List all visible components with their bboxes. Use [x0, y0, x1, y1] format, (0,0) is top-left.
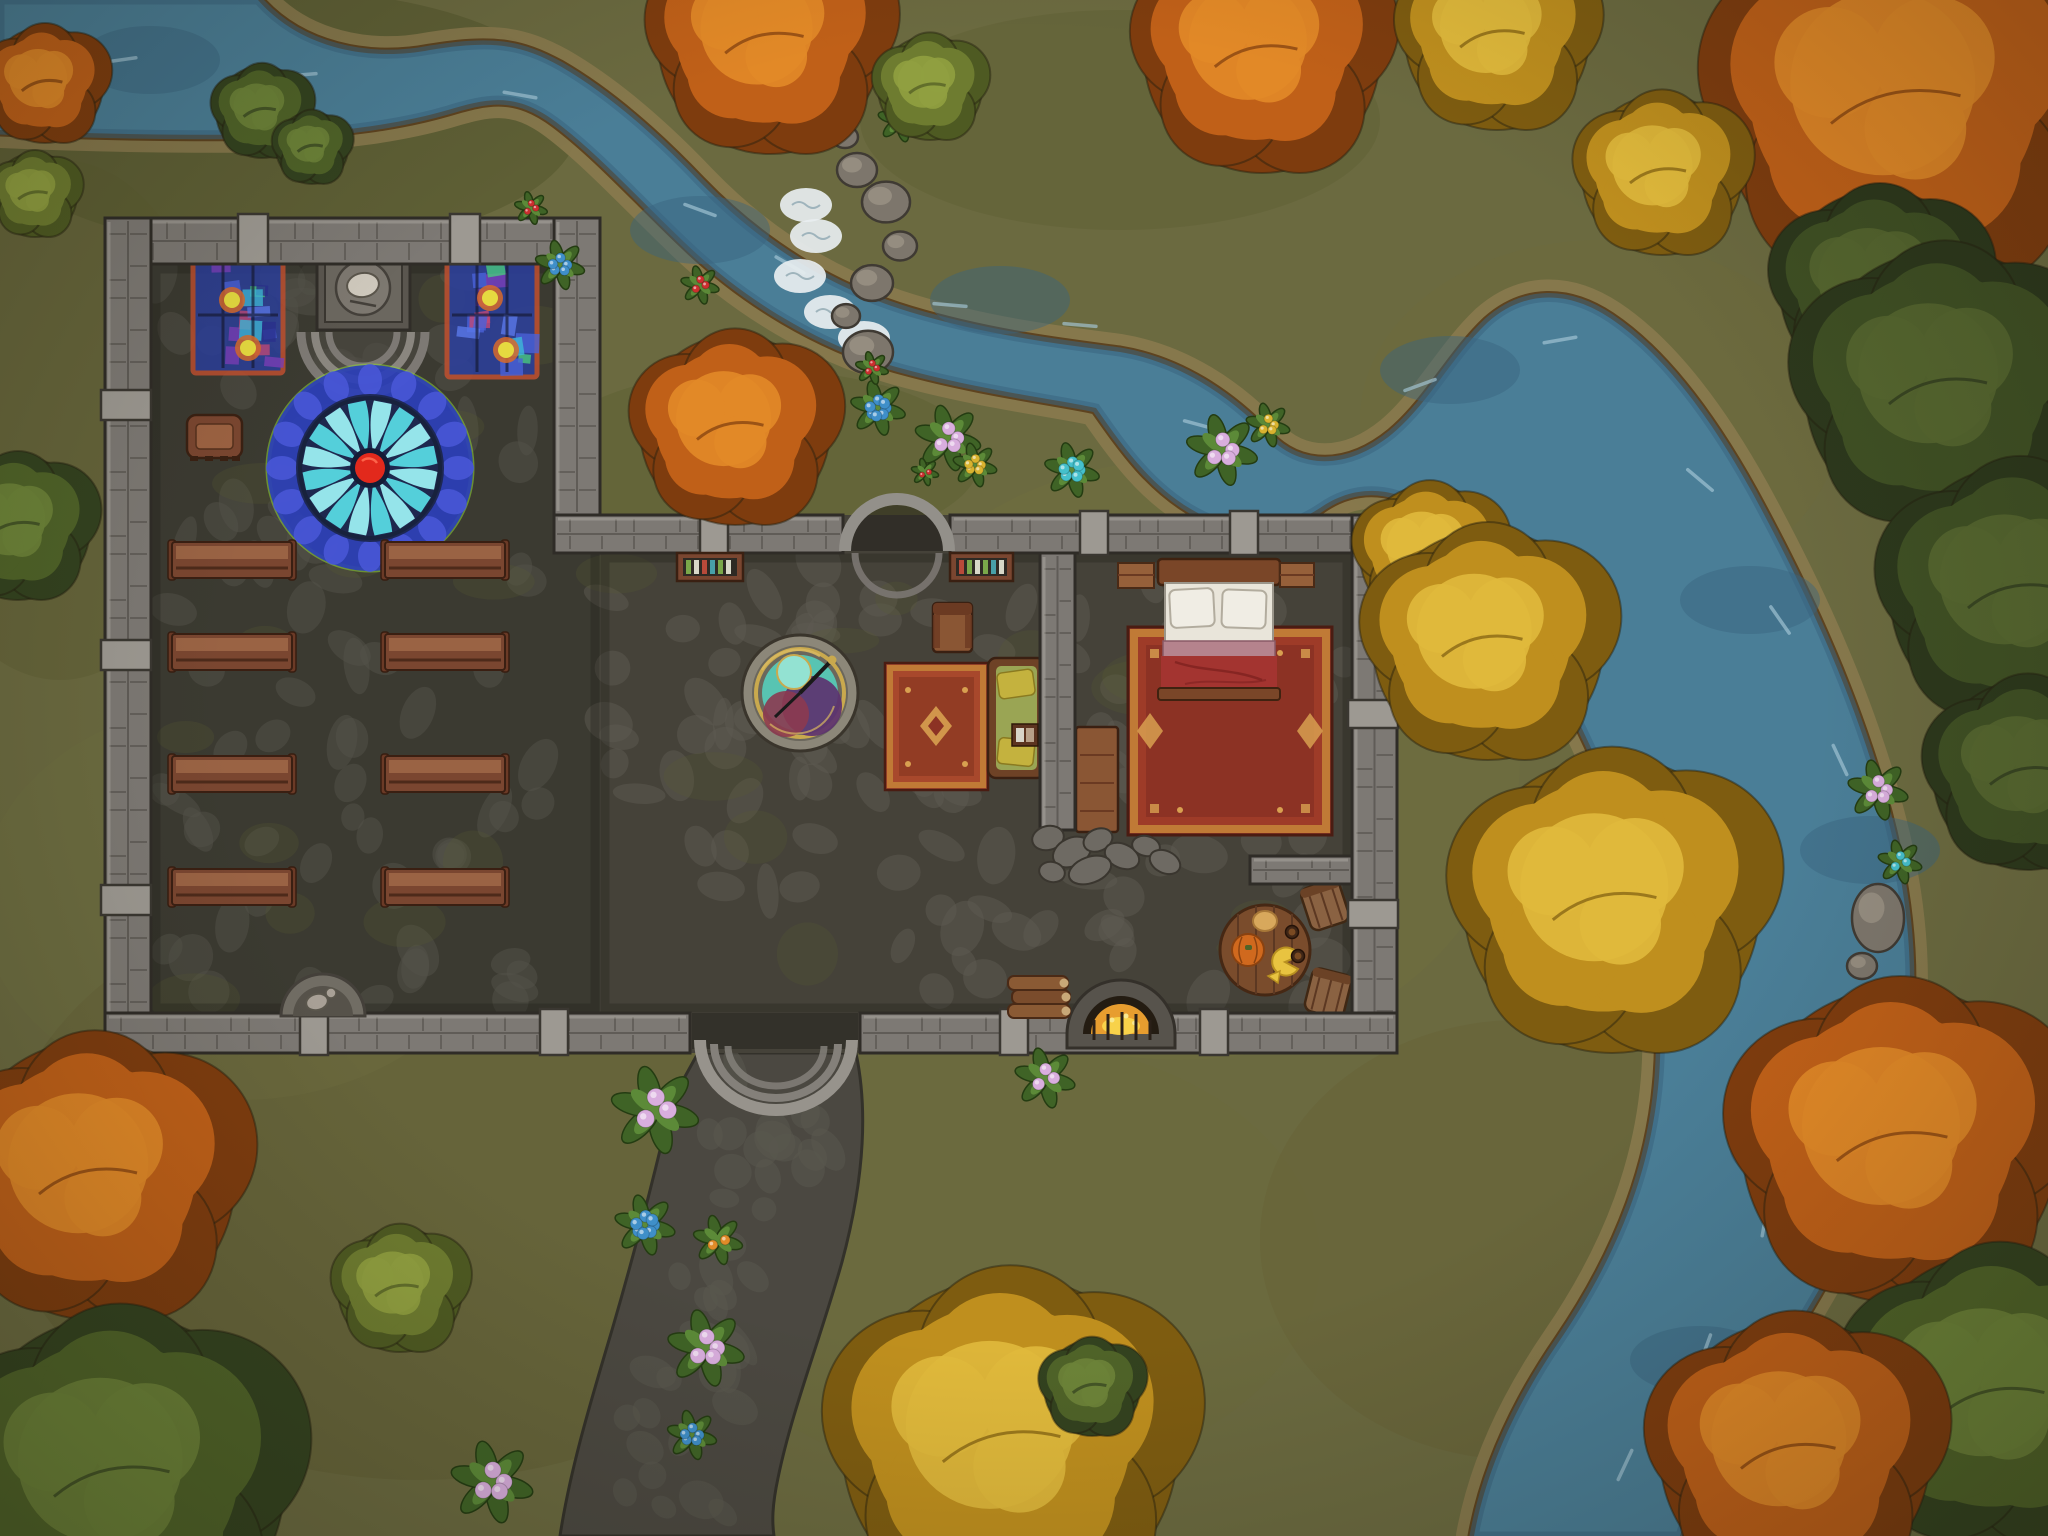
couch-side-shelf	[1012, 724, 1038, 746]
pew[interactable]	[168, 754, 296, 794]
battlemap-canvas[interactable]	[0, 0, 2048, 1536]
couch-pillow	[996, 669, 1035, 700]
wall-buttress	[450, 214, 480, 264]
wall-buttress	[101, 640, 151, 670]
pew[interactable]	[381, 540, 509, 580]
bread-loaf	[1253, 911, 1277, 931]
pew[interactable]	[168, 632, 296, 672]
firewood-stack[interactable]	[1008, 976, 1071, 1018]
pew[interactable]	[381, 867, 509, 907]
bed-pillow	[1169, 588, 1215, 628]
small-rug	[885, 663, 988, 790]
kneeler-chest[interactable]	[187, 415, 242, 461]
pew[interactable]	[381, 754, 509, 794]
wall-buttress	[1230, 511, 1258, 555]
wall-buttress	[101, 885, 151, 915]
wall-buttress	[1200, 1009, 1228, 1055]
bed-pillow	[1221, 589, 1266, 629]
green-tree	[272, 109, 354, 184]
bed-blanket	[1161, 656, 1277, 690]
astronomical-clock[interactable]	[742, 635, 858, 751]
round-dining-table[interactable]	[1220, 905, 1310, 995]
bottle-shelf-east[interactable]	[950, 553, 1013, 581]
side-table[interactable]	[1076, 727, 1118, 832]
wall-buttress	[101, 390, 151, 420]
pew[interactable]	[381, 632, 509, 672]
nightstand-right[interactable]	[1280, 563, 1314, 587]
bed-footboard	[1158, 688, 1280, 700]
bottle-shelf-west[interactable]	[677, 553, 743, 581]
wall-buttress	[1080, 511, 1108, 555]
green-couch[interactable]	[988, 658, 1045, 778]
bed[interactable]	[1158, 559, 1280, 700]
bed-headboard	[1158, 559, 1280, 585]
olive-tree	[872, 32, 991, 140]
rose-window-projection	[266, 364, 474, 572]
wall-buttress	[238, 214, 268, 264]
pew[interactable]	[168, 867, 296, 907]
pew[interactable]	[168, 540, 296, 580]
green-tree	[1038, 1337, 1147, 1436]
wall-buttress	[1348, 900, 1398, 928]
nightstand-left[interactable]	[1118, 563, 1154, 588]
wall-buttress	[540, 1009, 568, 1055]
olive-tree	[331, 1224, 472, 1352]
barrel-chair-south[interactable]	[1303, 967, 1352, 1019]
hall-chair[interactable]	[933, 603, 972, 652]
